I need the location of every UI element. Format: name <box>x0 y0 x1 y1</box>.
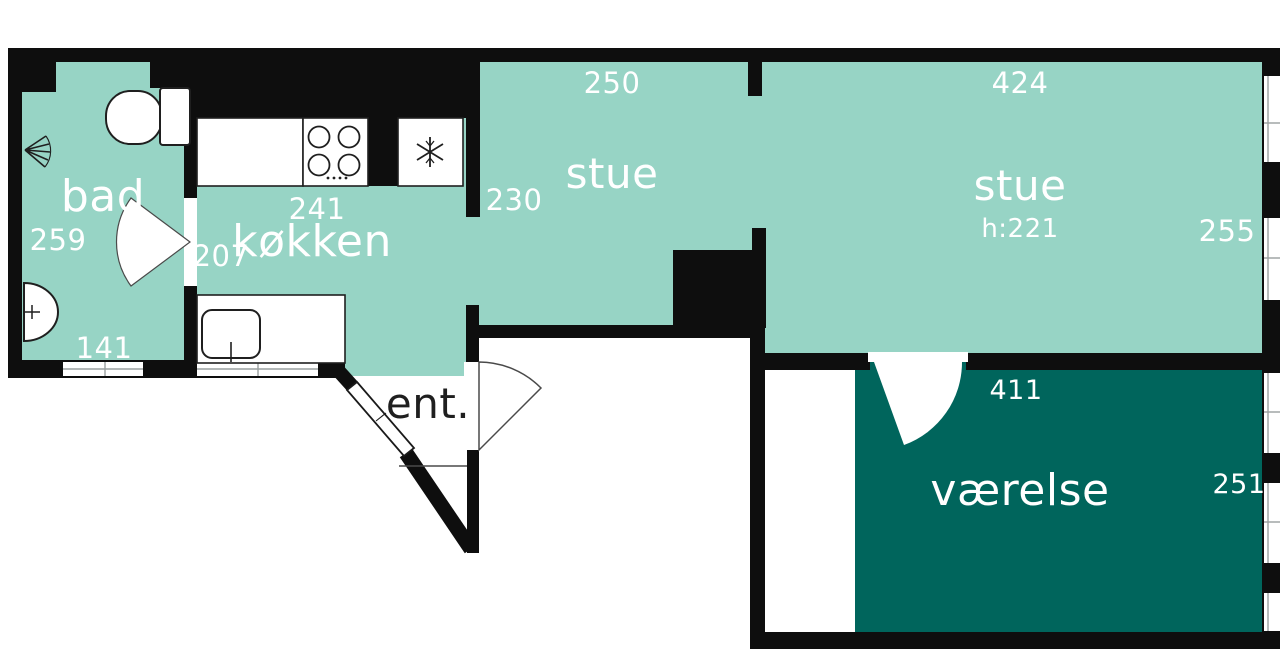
stue-large-room-label: stue <box>974 161 1067 210</box>
vaerelse-side-dimension: 251 <box>1212 469 1265 500</box>
wall-left <box>8 48 22 378</box>
wall-counter-gap <box>368 118 398 186</box>
window <box>1264 373 1280 453</box>
bad-bottom-dimension: 141 <box>76 331 133 365</box>
stue-large-side-dimension: 255 <box>1199 214 1256 248</box>
wall-vaerelse-left <box>750 325 765 649</box>
window <box>1264 76 1280 162</box>
wall-stue-large-bottom-left <box>765 353 870 370</box>
window <box>1264 593 1280 631</box>
window <box>1264 483 1280 563</box>
kokken-side-dimension: 207 <box>193 239 250 273</box>
floorplan: bad 259 141 241 køkken 207 250 stue 230 … <box>0 0 1280 649</box>
wall-kitchen-stue <box>466 48 480 217</box>
snowflake-icon <box>398 118 463 186</box>
window <box>1264 218 1280 300</box>
vaerelse-room-label: værelse <box>930 465 1109 516</box>
stue-small-room-label: stue <box>566 149 659 198</box>
wall-stue-divider-mid <box>752 228 766 328</box>
kokken-room-label: køkken <box>232 216 392 267</box>
stue-small-side-dimension: 230 <box>486 183 543 217</box>
bad-room-label: bad <box>61 171 145 222</box>
floorplan-drawing: bad 259 141 241 køkken 207 250 stue 230 … <box>0 0 1280 649</box>
stue-small-top-dimension: 250 <box>584 66 641 100</box>
wall-bad-notch <box>8 48 56 92</box>
wall-chimney-block <box>673 250 755 333</box>
vaerelse-top-dimension: 411 <box>989 375 1042 406</box>
stue-large-height-note: h:221 <box>981 214 1058 244</box>
stue-large-top-dimension: 424 <box>992 66 1049 100</box>
wall-kitchen-top <box>185 48 480 118</box>
wall-bottom <box>750 632 1280 649</box>
kitchen-worktop <box>197 118 303 186</box>
kitchen-sink-icon <box>197 295 345 363</box>
wall-stue-large-bottom-right <box>966 353 1280 370</box>
wall-stue-divider-top <box>748 48 762 96</box>
bad-side-dimension: 259 <box>30 223 87 257</box>
toilet-icon <box>106 88 190 145</box>
entre-room-label: ent. <box>386 379 470 428</box>
vaerelse-door-opening <box>868 352 968 362</box>
stove-hob-icon <box>303 118 368 186</box>
